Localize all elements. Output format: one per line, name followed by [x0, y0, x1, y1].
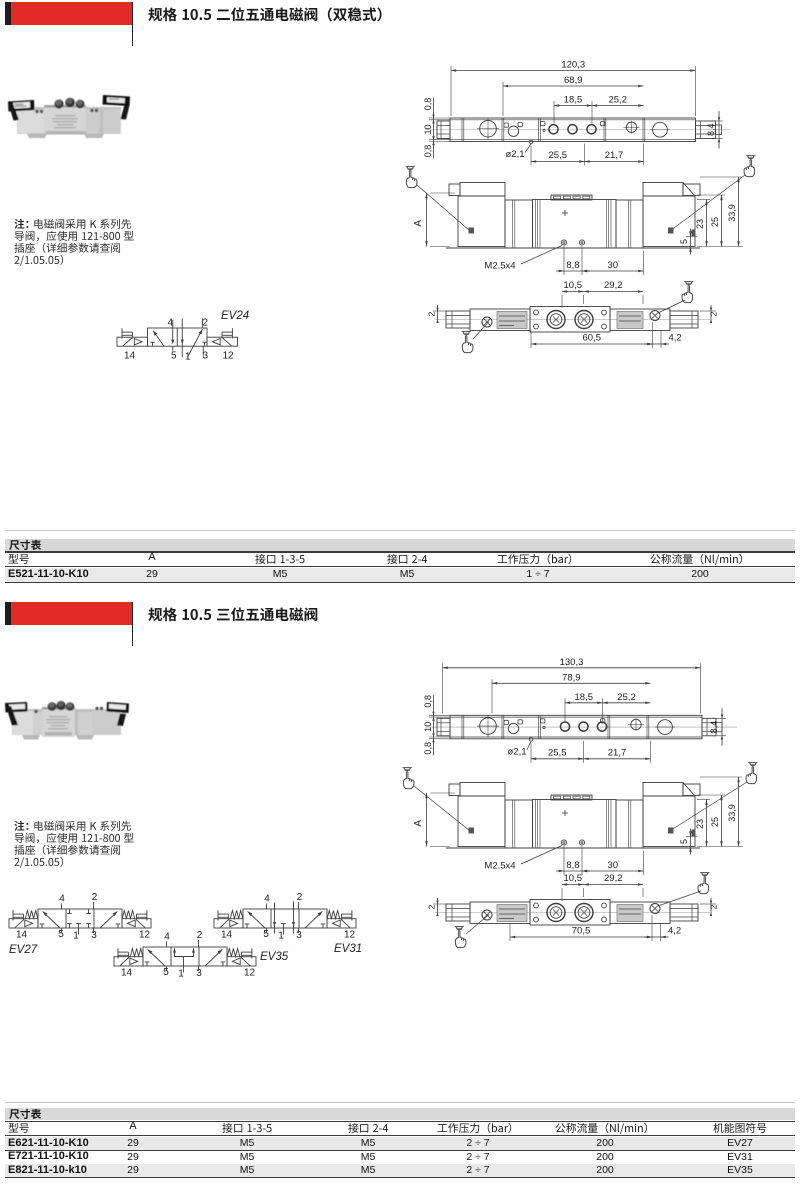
- svg-text:3: 3: [196, 968, 202, 979]
- svg-text:3: 3: [91, 930, 97, 941]
- svg-text:ø2,1: ø2,1: [505, 149, 524, 160]
- svg-text:23: 23: [695, 219, 705, 229]
- svg-text:25: 25: [710, 217, 720, 227]
- svg-text:23: 23: [695, 819, 705, 829]
- svg-text:21,7: 21,7: [608, 747, 627, 758]
- svg-text:10: 10: [423, 124, 433, 134]
- svg-text:5: 5: [679, 839, 689, 844]
- svg-text:2: 2: [709, 311, 719, 316]
- svg-text:1: 1: [185, 352, 191, 363]
- svg-text:4: 4: [164, 932, 170, 943]
- svg-text:4: 4: [264, 894, 270, 905]
- svg-text:12: 12: [222, 351, 234, 362]
- svg-text:120,3: 120,3: [561, 60, 585, 71]
- svg-text:1: 1: [73, 931, 79, 942]
- svg-text:25,2: 25,2: [609, 95, 628, 106]
- svg-text:0,8: 0,8: [423, 695, 433, 708]
- svg-text:EV24: EV24: [221, 310, 249, 322]
- svg-text:4,2: 4,2: [668, 926, 681, 937]
- svg-text:25,2: 25,2: [617, 692, 636, 703]
- svg-text:10: 10: [423, 722, 433, 732]
- svg-text:1: 1: [278, 931, 284, 942]
- svg-text:8,8: 8,8: [566, 860, 579, 871]
- svg-text:EV27: EV27: [9, 944, 38, 956]
- svg-text:12: 12: [344, 930, 356, 941]
- svg-text:ø2,1: ø2,1: [507, 746, 526, 757]
- svg-text:M2.5x4: M2.5x4: [484, 261, 515, 272]
- svg-text:10,5: 10,5: [564, 873, 583, 884]
- svg-text:18,5: 18,5: [564, 95, 583, 106]
- svg-text:12: 12: [139, 930, 151, 941]
- svg-text:2: 2: [427, 904, 437, 909]
- svg-text:2: 2: [197, 930, 203, 941]
- svg-text:EV35: EV35: [260, 951, 289, 963]
- svg-text:2: 2: [202, 318, 208, 329]
- svg-text:30: 30: [607, 860, 618, 871]
- svg-text:A: A: [413, 220, 424, 227]
- svg-text:30: 30: [607, 260, 618, 271]
- svg-text:4,2: 4,2: [669, 333, 682, 344]
- svg-text:21,7: 21,7: [605, 150, 624, 161]
- svg-text:EV31: EV31: [334, 943, 362, 955]
- svg-text:3: 3: [202, 351, 208, 362]
- svg-text:33,9: 33,9: [727, 204, 737, 222]
- svg-text:4: 4: [167, 318, 173, 329]
- svg-text:60,5: 60,5: [583, 333, 602, 344]
- svg-text:12: 12: [244, 968, 256, 979]
- svg-text:14: 14: [221, 930, 233, 941]
- svg-text:5: 5: [171, 351, 177, 362]
- svg-text:130,3: 130,3: [560, 657, 584, 668]
- svg-text:25,5: 25,5: [549, 150, 568, 161]
- svg-text:3: 3: [296, 930, 302, 941]
- svg-text:A: A: [413, 820, 424, 827]
- svg-text:5: 5: [679, 239, 689, 244]
- svg-text:0,8: 0,8: [423, 742, 433, 755]
- svg-text:2: 2: [92, 892, 98, 903]
- svg-text:5: 5: [263, 929, 269, 940]
- svg-text:0,8: 0,8: [423, 98, 433, 111]
- svg-text:1: 1: [178, 969, 184, 980]
- svg-text:68,9: 68,9: [564, 75, 583, 86]
- svg-text:25,5: 25,5: [548, 747, 567, 758]
- svg-text:18,5: 18,5: [575, 692, 594, 703]
- svg-text:2: 2: [427, 311, 437, 316]
- svg-text:8,4: 8,4: [709, 721, 719, 734]
- svg-text:10,5: 10,5: [564, 280, 583, 291]
- svg-text:M2.5x4: M2.5x4: [484, 861, 515, 872]
- svg-text:14: 14: [16, 930, 28, 941]
- svg-text:25: 25: [710, 817, 720, 827]
- svg-text:14: 14: [124, 351, 136, 362]
- svg-text:2: 2: [709, 904, 719, 909]
- svg-text:70,5: 70,5: [572, 926, 591, 937]
- svg-text:29,2: 29,2: [604, 873, 623, 884]
- svg-text:5: 5: [163, 967, 169, 978]
- svg-text:8,8: 8,8: [566, 260, 579, 271]
- svg-text:0,8: 0,8: [423, 145, 433, 158]
- svg-text:2: 2: [297, 892, 303, 903]
- svg-text:78,9: 78,9: [562, 672, 581, 683]
- svg-text:5: 5: [58, 929, 64, 940]
- svg-text:33,9: 33,9: [727, 804, 737, 822]
- svg-text:14: 14: [121, 968, 133, 979]
- svg-text:8,4: 8,4: [706, 123, 716, 136]
- svg-text:4: 4: [59, 894, 65, 905]
- svg-text:29,2: 29,2: [604, 280, 623, 291]
